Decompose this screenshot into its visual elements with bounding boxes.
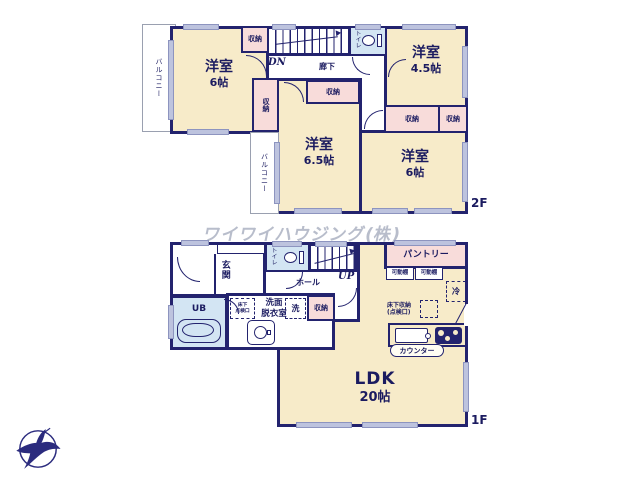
window: [272, 24, 296, 30]
door-arc-toilet-2f: [352, 57, 370, 75]
stove-icon: [435, 327, 462, 344]
window: [294, 208, 342, 214]
toilet-2f-icon: [362, 33, 382, 48]
room-2f-ne-size: 4.5帖: [394, 62, 458, 76]
ldk-label: LDK 20帖: [338, 368, 412, 407]
kitchen-sink-icon: [395, 328, 428, 343]
underfloor-storage-box: [420, 300, 438, 318]
company-logo: [12, 424, 64, 474]
stairs-up-label: UP: [338, 271, 354, 282]
bathtub-icon: [177, 319, 221, 343]
washer-label: 洗: [292, 304, 300, 313]
ldk-size: 20帖: [338, 390, 412, 407]
shelf-left-label: 可動棚: [392, 271, 409, 277]
window: [462, 46, 468, 98]
window: [187, 129, 229, 135]
pantry: パントリー: [384, 242, 468, 269]
toilet-2f-label: トイレ: [353, 30, 362, 48]
window: [362, 422, 418, 428]
room-2f-se-label: 洋室 6帖: [386, 148, 444, 180]
pantry-label: パントリー: [403, 251, 448, 260]
closet-2f-center: 収納: [306, 80, 360, 104]
room-2f-nw-size: 6帖: [184, 76, 254, 90]
refrigerator-space: 冷: [446, 281, 466, 302]
bathroom-ub: UB: [170, 295, 228, 350]
closet-2f-se2: 収納: [438, 105, 468, 133]
stairs-1f-arrowhead: [349, 247, 355, 254]
window: [181, 240, 209, 246]
closet-2f-se1-label: 収納: [405, 116, 419, 123]
toilet-1f-label: トイレ: [269, 247, 278, 265]
shoe-cabinet: [217, 244, 265, 254]
washer-space: 洗: [285, 298, 306, 319]
toilet-2f: トイレ: [349, 26, 387, 56]
entrance-step-line: [214, 254, 216, 295]
shelf-right: 可動棚: [415, 267, 443, 280]
window: [462, 142, 468, 202]
floor2-label: 2F: [471, 196, 488, 210]
window: [372, 208, 408, 214]
room-2f-se-size: 6帖: [386, 166, 444, 180]
bird-logo-icon: [12, 424, 64, 474]
ldk-name: LDK: [338, 368, 412, 390]
window: [394, 240, 456, 246]
closet-1f: 収納: [307, 295, 335, 321]
floor-plan: バルコニー トイレ 収納 収納 収納 収納 収納 バルコニー: [0, 0, 640, 480]
room-2f-se-name: 洋室: [386, 148, 444, 166]
window: [315, 241, 347, 247]
closet-2f-west: 収納: [252, 78, 279, 132]
closet-2f-nw-label: 収納: [248, 36, 262, 43]
underfloor-storage-line2: (点検口): [387, 310, 411, 317]
window: [414, 208, 452, 214]
room-2f-center-name: 洋室: [287, 136, 351, 154]
closet-2f-west-label: 収納: [262, 98, 269, 112]
shelf-left: 可動棚: [386, 267, 414, 280]
room-2f-center-label: 洋室 6.5帖: [287, 136, 351, 168]
window: [296, 422, 352, 428]
hallway-label: 廊下: [305, 62, 349, 72]
stairs-2f-arrowhead: [336, 30, 342, 37]
window: [272, 241, 302, 247]
room-2f-ne-name: 洋室: [394, 44, 458, 62]
balcony-left-label: バルコニー: [154, 58, 164, 98]
washbasin-icon: [247, 320, 275, 345]
floor1-label: 1F: [471, 413, 488, 427]
hall-label: ホール: [286, 278, 330, 288]
window: [168, 305, 174, 339]
room-2f-nw-label: 洋室 6帖: [184, 58, 254, 90]
counter-label-box: カウンター: [390, 344, 444, 357]
counter-label: カウンター: [400, 346, 435, 356]
closet-2f-center-label: 収納: [326, 89, 340, 96]
shelf-right-label: 可動棚: [421, 271, 438, 277]
window: [274, 142, 280, 204]
toilet-1f-icon: [284, 250, 304, 265]
room-2f-center-size: 6.5帖: [287, 154, 351, 168]
window: [168, 40, 174, 120]
window: [183, 24, 219, 30]
bath-label: UB: [192, 304, 206, 314]
window: [463, 362, 469, 412]
closet-1f-label: 収納: [314, 305, 328, 312]
closet-2f-se2-label: 収納: [446, 116, 460, 123]
door-arc-room-se: [364, 110, 383, 129]
closet-2f-nw: 収納: [241, 26, 269, 53]
window: [355, 24, 381, 30]
window: [402, 24, 456, 30]
room-2f-ne-label: 洋室 4.5帖: [394, 44, 458, 76]
balcony-center-label: バルコニー: [260, 153, 270, 193]
toilet-1f: トイレ: [265, 243, 310, 272]
closet-2f-se1: 収納: [384, 105, 440, 133]
entrance-label-text: 玄関: [218, 260, 230, 280]
room-2f-nw-name: 洋室: [184, 58, 254, 76]
refrigerator-label: 冷: [452, 287, 460, 296]
entrance-label: 玄関: [218, 260, 230, 286]
stairs-down-label: DN: [268, 57, 286, 68]
